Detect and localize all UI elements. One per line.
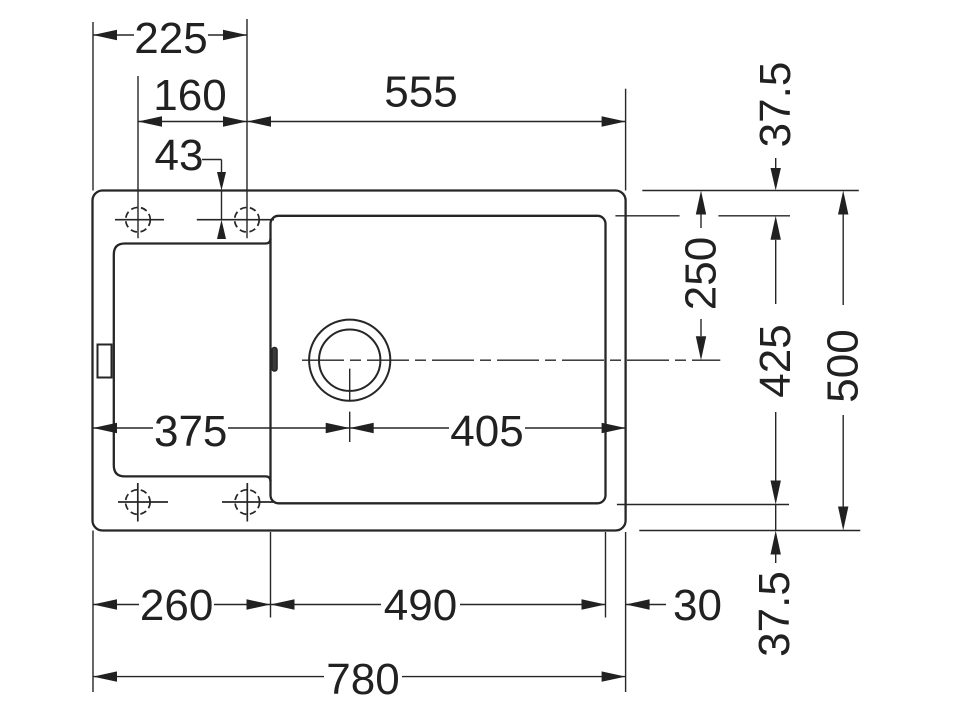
- svg-text:375: 375: [154, 407, 227, 456]
- svg-text:425: 425: [751, 324, 800, 397]
- svg-text:555: 555: [384, 68, 457, 117]
- svg-text:500: 500: [819, 329, 868, 402]
- svg-text:405: 405: [450, 407, 523, 456]
- svg-text:250: 250: [677, 237, 726, 310]
- svg-text:225: 225: [134, 14, 207, 63]
- svg-text:490: 490: [384, 581, 457, 630]
- svg-text:30: 30: [673, 581, 722, 630]
- svg-text:37.5: 37.5: [750, 571, 799, 657]
- svg-text:37.5: 37.5: [751, 62, 800, 148]
- svg-text:43: 43: [155, 131, 204, 180]
- svg-text:780: 780: [326, 655, 399, 704]
- svg-text:160: 160: [153, 71, 226, 120]
- svg-text:260: 260: [140, 581, 213, 630]
